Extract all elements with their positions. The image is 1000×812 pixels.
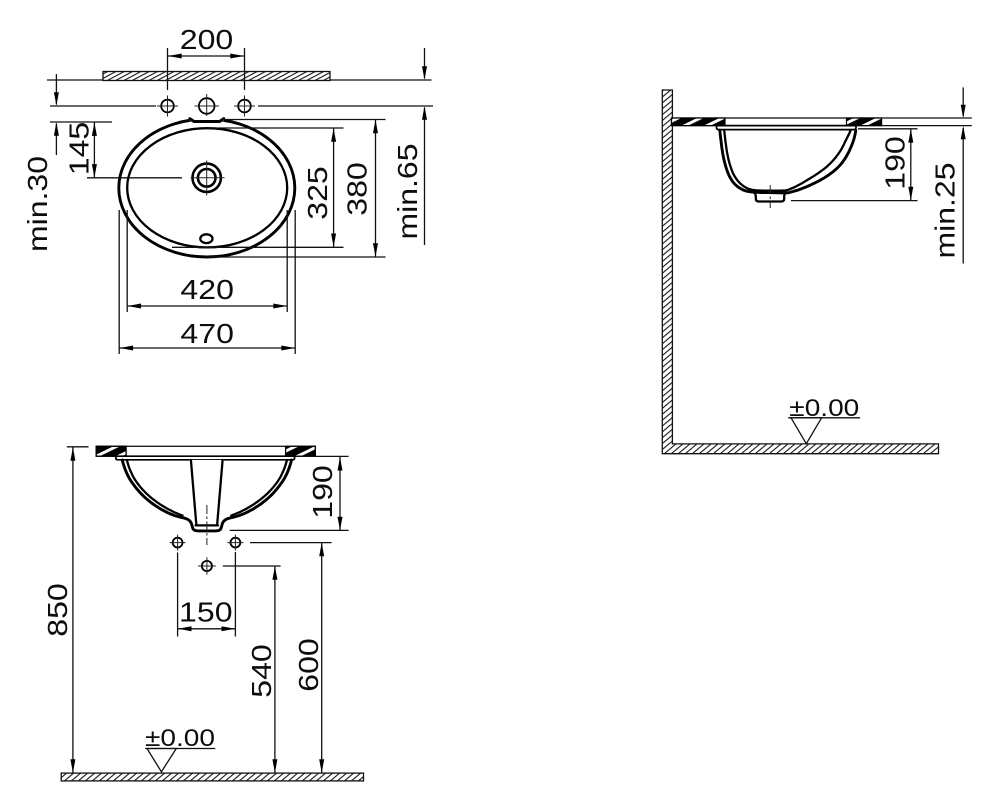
- svg-text:190: 190: [307, 465, 338, 519]
- svg-text:±0.00: ±0.00: [145, 725, 215, 752]
- svg-text:540: 540: [246, 644, 277, 698]
- svg-text:min.25: min.25: [930, 163, 961, 259]
- svg-text:200: 200: [180, 24, 234, 55]
- svg-text:145: 145: [63, 122, 94, 176]
- svg-text:min.30: min.30: [22, 156, 53, 252]
- svg-text:850: 850: [42, 583, 73, 637]
- svg-text:470: 470: [180, 318, 234, 349]
- svg-text:325: 325: [302, 166, 333, 220]
- svg-text:150: 150: [179, 597, 233, 628]
- svg-text:190: 190: [879, 136, 910, 190]
- svg-text:600: 600: [293, 638, 324, 692]
- svg-text:380: 380: [342, 162, 373, 216]
- svg-text:min.65: min.65: [392, 144, 423, 240]
- svg-text:420: 420: [180, 274, 234, 305]
